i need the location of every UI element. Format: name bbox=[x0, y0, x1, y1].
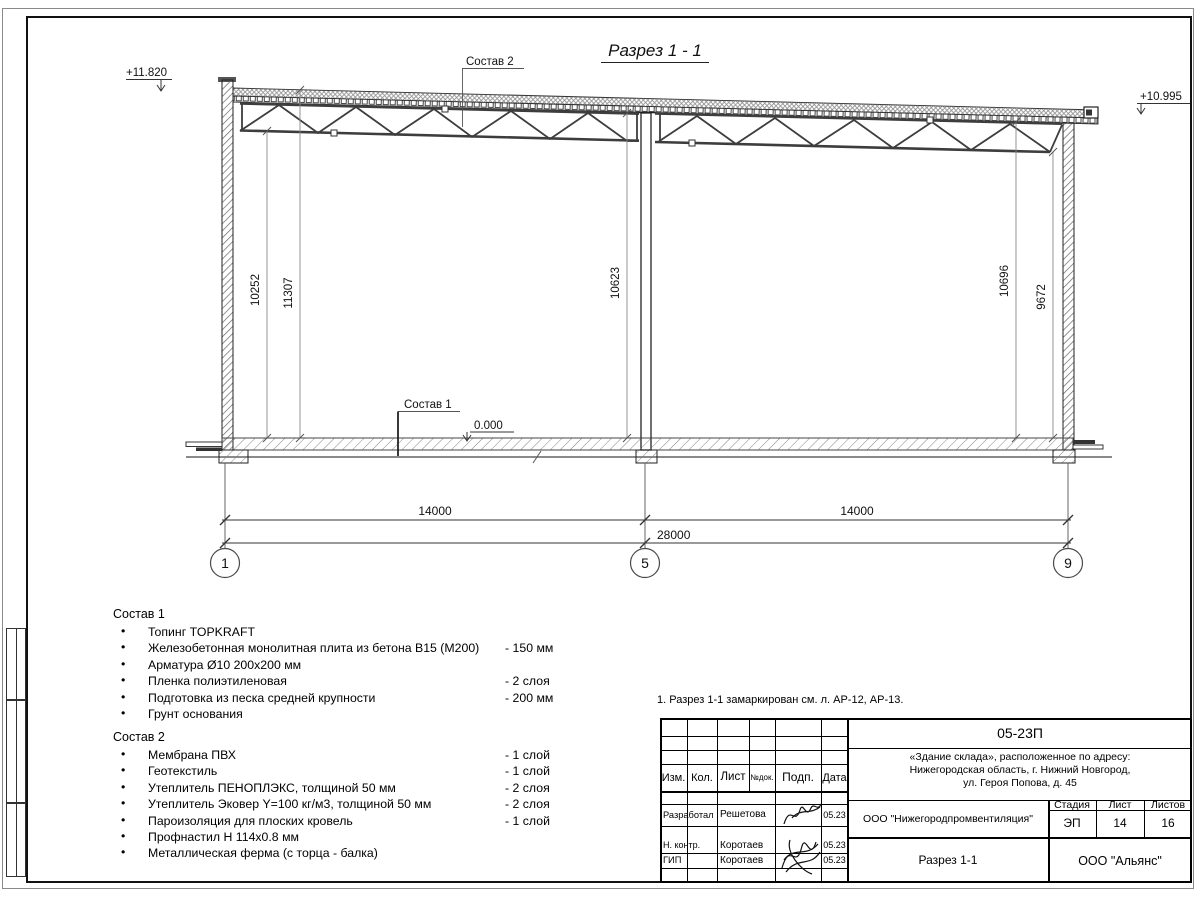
sostav1-callout-label: Состав 1 bbox=[404, 399, 452, 411]
tb-role-ncontrol: Н. контр. bbox=[663, 838, 717, 853]
base-flashing-left bbox=[186, 442, 222, 451]
material-item: •Профнастил Н 114х0.8 мм bbox=[113, 830, 573, 846]
sheet-note: 1. Разрез 1-1 замаркирован см. л. АР-12,… bbox=[657, 694, 903, 706]
material-item: •Металлическая ферма (с торца - балка) bbox=[113, 846, 573, 862]
sostav2-callout: Состав 2 bbox=[462, 56, 524, 127]
material-quantity: - 1 слой bbox=[505, 814, 550, 828]
material-item: •Арматура Ø10 200х200 мм bbox=[113, 658, 573, 674]
tb-sheet-value: 14 bbox=[1096, 811, 1144, 837]
material-name: Грунт основания bbox=[148, 707, 243, 721]
tb-name-gip: Коротаев bbox=[720, 853, 774, 868]
footing-left bbox=[219, 450, 248, 463]
tb-sheet-label: Лист bbox=[1096, 799, 1144, 811]
tb-document-code: 05-23П bbox=[850, 720, 1190, 746]
dim-height-10252: 10252 bbox=[250, 274, 262, 306]
elevation-right-label: +10.995 bbox=[1140, 91, 1182, 103]
dim-span2-label: 14000 bbox=[840, 504, 874, 518]
sostav2-block: Состав 2 •Мембрана ПВХ- 1 слой •Геотекст… bbox=[113, 730, 573, 863]
dim-span1-label: 14000 bbox=[418, 504, 452, 518]
material-quantity: - 2 слоя bbox=[505, 674, 550, 688]
material-name: Пленка полиэтиленовая bbox=[148, 674, 287, 688]
material-name: Арматура Ø10 200х200 мм bbox=[148, 658, 301, 672]
margin-box-divider bbox=[16, 628, 17, 877]
material-name: Пароизоляция для плоских кровель bbox=[148, 814, 353, 828]
floor-slab bbox=[222, 438, 1073, 450]
tb-name-ncontrol: Коротаев bbox=[720, 838, 774, 853]
elevation-floor-label: 0.000 bbox=[474, 420, 503, 432]
material-quantity: - 200 мм bbox=[505, 691, 553, 705]
material-item: •Геотекстиль- 1 слой bbox=[113, 764, 573, 780]
left-wall-panel bbox=[222, 80, 233, 450]
tb-company: ООО "Нижегородпромвентиляция" bbox=[850, 802, 1046, 836]
tb-role-gip: ГИП bbox=[663, 853, 717, 868]
view-title-text: Разрез 1 - 1 bbox=[608, 41, 702, 60]
tb-col-podp: Подп. bbox=[775, 764, 821, 792]
footing-right bbox=[1053, 450, 1075, 463]
material-item: •Подготовка из песка средней крупности- … bbox=[113, 691, 573, 707]
material-item: •Железобетонная монолитная плита из бето… bbox=[113, 641, 573, 657]
tb-col-list: Лист bbox=[717, 764, 749, 792]
axis-extension-lines bbox=[225, 463, 1068, 548]
dim-height-10696: 10696 bbox=[999, 265, 1011, 297]
tb-stage-value: ЭП bbox=[1048, 811, 1096, 837]
material-name: Железобетонная монолитная плита из бетон… bbox=[148, 641, 479, 655]
material-quantity: - 2 слоя bbox=[505, 781, 550, 795]
tb-project-line1: «Здание склада», расположенное по адресу… bbox=[850, 751, 1190, 764]
material-item: •Пароизоляция для плоских кровель- 1 сло… bbox=[113, 814, 573, 830]
tb-date-developer: 05.23 bbox=[821, 804, 848, 826]
tb-col-data: Дата bbox=[821, 764, 848, 792]
material-item: •Мембрана ПВХ- 1 слой bbox=[113, 748, 573, 764]
material-name: Геотекстиль bbox=[148, 764, 217, 778]
sostav1-heading: Состав 1 bbox=[113, 607, 573, 621]
tb-col-kol: Кол. bbox=[687, 764, 717, 792]
tb-col-izm: Изм. bbox=[660, 764, 687, 792]
material-quantity: - 150 мм bbox=[505, 641, 553, 655]
right-wall-panel bbox=[1063, 123, 1074, 450]
tb-firm: ООО "Альянс" bbox=[1048, 839, 1192, 883]
axis-9-label: 9 bbox=[1064, 555, 1072, 571]
elevation-left: +11.820 bbox=[126, 67, 172, 91]
dim-height-11307: 11307 bbox=[283, 277, 295, 308]
material-item: •Грунт основания bbox=[113, 707, 573, 723]
tb-sheets-value: 16 bbox=[1144, 811, 1192, 837]
tb-date-gip: 05.23 bbox=[821, 853, 848, 868]
tb-stage-label: Стадия bbox=[1048, 799, 1096, 811]
material-name: Металлическая ферма (с торца - балка) bbox=[148, 846, 378, 860]
roof-end-cap-plate bbox=[1086, 110, 1092, 116]
axis-5-label: 5 bbox=[641, 555, 649, 571]
tb-date-ncontrol: 05.23 bbox=[821, 838, 848, 853]
tb-name-developer: Решетова bbox=[720, 804, 774, 826]
axis-1-label: 1 bbox=[221, 555, 229, 571]
tb-hline bbox=[660, 736, 848, 737]
middle-column bbox=[641, 113, 651, 450]
material-quantity: - 2 слоя bbox=[505, 797, 550, 811]
sostav2-callout-label: Состав 2 bbox=[466, 56, 514, 68]
material-name: Подготовка из песка средней крупности bbox=[148, 691, 375, 705]
material-item: •Пленка полиэтиленовая- 2 слоя bbox=[113, 674, 573, 690]
tb-drawing-name: Разрез 1-1 bbox=[848, 839, 1048, 883]
section-drawing: Разрез 1 - 1 bbox=[0, 0, 1200, 600]
signature-developer bbox=[780, 798, 824, 830]
base-flashing-right bbox=[1073, 440, 1103, 449]
sostav1-block: Состав 1 •Топинг TOPKRAFT •Железобетонна… bbox=[113, 607, 573, 723]
footing-middle bbox=[636, 450, 657, 463]
material-quantity: - 1 слой bbox=[505, 764, 550, 778]
signature-gip bbox=[776, 832, 824, 878]
material-name: Профнастил Н 114х0.8 мм bbox=[148, 830, 299, 844]
dim-height-9672: 9672 bbox=[1036, 284, 1048, 310]
tb-role-developer: Разработал bbox=[663, 804, 717, 826]
material-name: Утеплитель Эковер Y=100 кг/м3, толщиной … bbox=[148, 797, 431, 811]
drawing-sheet: Разрез 1 - 1 bbox=[0, 0, 1200, 900]
material-name: Мембрана ПВХ bbox=[148, 748, 236, 762]
tb-sheets-label: Листов bbox=[1144, 799, 1192, 811]
view-title: Разрез 1 - 1 bbox=[601, 41, 709, 63]
material-item: •Утеплитель Эковер Y=100 кг/м3, толщиной… bbox=[113, 797, 573, 813]
dim-total-label: 28000 bbox=[657, 528, 691, 542]
material-quantity: - 1 слой bbox=[505, 748, 550, 762]
material-item: •Топинг TOPKRAFT bbox=[113, 625, 573, 641]
material-name: Топинг TOPKRAFT bbox=[148, 625, 255, 639]
tb-hline bbox=[848, 748, 1192, 749]
axis-bubbles: 1 5 9 bbox=[211, 549, 1083, 578]
sostav2-heading: Состав 2 bbox=[113, 730, 573, 744]
tb-project-line2: Нижегородская область, г. Нижний Новгоро… bbox=[850, 764, 1190, 777]
tb-vline bbox=[717, 718, 718, 883]
tb-project-line3: ул. Героя Попова, д. 45 bbox=[850, 777, 1190, 790]
elevation-left-label: +11.820 bbox=[126, 67, 167, 79]
dim-lines bbox=[222, 520, 1071, 543]
tb-hline bbox=[660, 750, 848, 751]
tb-col-ndok: №док. bbox=[749, 764, 775, 792]
material-item: •Утеплитель ПЕНОПЛЭКС, толщиной 50 мм- 2… bbox=[113, 781, 573, 797]
material-name: Утеплитель ПЕНОПЛЭКС, толщиной 50 мм bbox=[148, 781, 396, 795]
elevation-right: +10.995 bbox=[1137, 91, 1190, 114]
dim-height-10623: 10623 bbox=[610, 267, 622, 299]
